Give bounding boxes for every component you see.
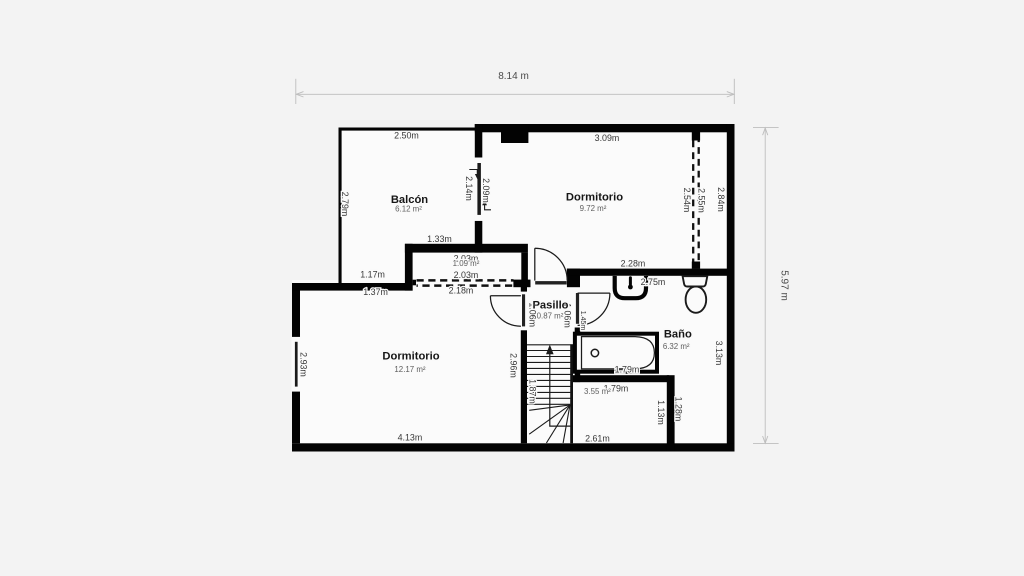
svg-text:Baño: Baño — [664, 329, 692, 341]
svg-text:6.32 m²: 6.32 m² — [663, 342, 690, 351]
svg-text:1.79m: 1.79m — [615, 365, 640, 375]
svg-text:0.87 m²: 0.87 m² — [537, 311, 564, 320]
svg-text:12.17 m²: 12.17 m² — [394, 365, 426, 374]
svg-text:1.13m: 1.13m — [656, 400, 666, 425]
svg-text:2.28m: 2.28m — [621, 258, 646, 268]
svg-text:1.37m: 1.37m — [363, 287, 388, 297]
svg-text:2.50m: 2.50m — [394, 130, 419, 140]
svg-text:6.12 m²: 6.12 m² — [395, 204, 422, 213]
svg-text:Dormitorio: Dormitorio — [566, 192, 623, 204]
svg-text:1.45m: 1.45m — [579, 311, 586, 331]
svg-text:2.61m: 2.61m — [585, 433, 610, 443]
svg-text:2.55m: 2.55m — [697, 188, 707, 213]
svg-text:3.55 m²: 3.55 m² — [584, 387, 611, 396]
svg-text:1.87m: 1.87m — [528, 379, 538, 404]
svg-text:2.03m: 2.03m — [454, 270, 479, 280]
svg-text:2.93m: 2.93m — [299, 352, 309, 377]
svg-text:1.09 m²: 1.09 m² — [453, 259, 480, 268]
svg-text:1.33m: 1.33m — [427, 234, 452, 244]
svg-text:2.75m: 2.75m — [641, 277, 666, 287]
svg-text:2.96m: 2.96m — [509, 353, 519, 378]
svg-text:2.54m: 2.54m — [682, 188, 692, 213]
svg-text:2.09m: 2.09m — [481, 178, 491, 203]
svg-text:Pasillo: Pasillo — [532, 299, 568, 311]
svg-text:3.09m: 3.09m — [595, 133, 620, 143]
svg-text:Dormitorio: Dormitorio — [382, 351, 439, 363]
svg-text:5.97 m: 5.97 m — [778, 270, 789, 301]
svg-text:2.84m: 2.84m — [716, 187, 726, 212]
svg-text:8.14 m: 8.14 m — [498, 71, 529, 82]
svg-text:2.18m: 2.18m — [449, 285, 474, 295]
svg-text:1.17m: 1.17m — [360, 269, 385, 279]
svg-text:9.72 m²: 9.72 m² — [580, 204, 607, 213]
svg-text:1.28m: 1.28m — [674, 397, 684, 422]
svg-text:2.14m: 2.14m — [464, 176, 474, 201]
svg-text:2.79m: 2.79m — [340, 192, 350, 217]
svg-text:4.13m: 4.13m — [398, 433, 423, 443]
svg-text:3.13m: 3.13m — [714, 341, 724, 366]
